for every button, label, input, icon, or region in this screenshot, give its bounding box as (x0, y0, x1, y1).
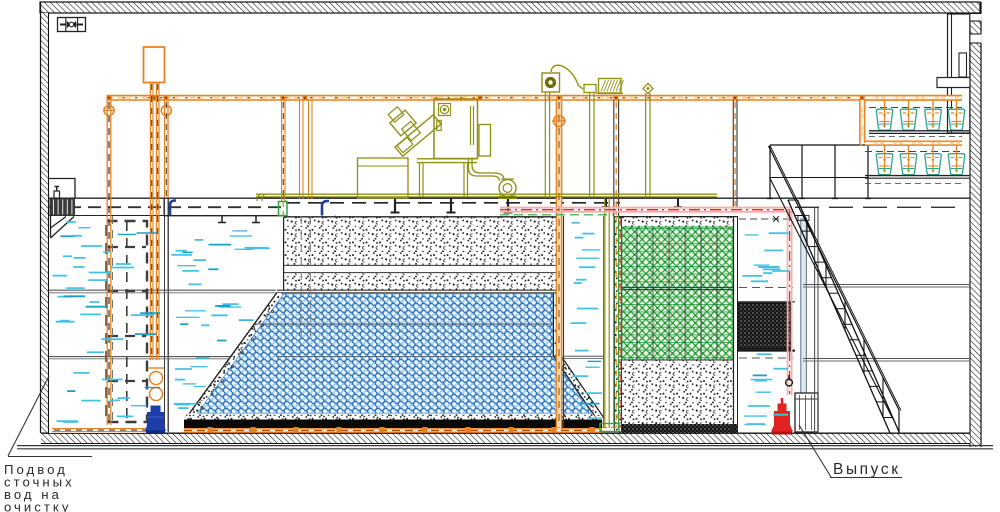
svg-text:Выпуск: Выпуск (833, 461, 901, 478)
svg-text:очистку: очистку (4, 500, 71, 512)
